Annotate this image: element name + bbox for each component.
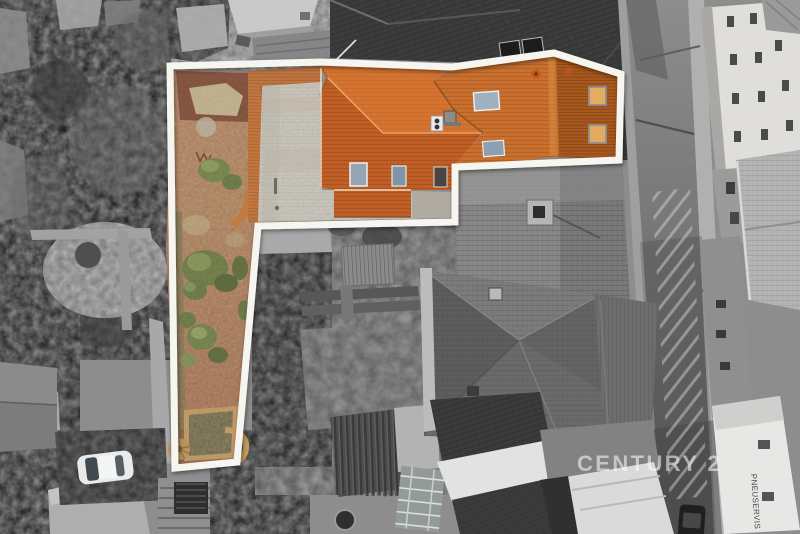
svg-text:CENTURY 2: CENTURY 2: [577, 451, 722, 476]
